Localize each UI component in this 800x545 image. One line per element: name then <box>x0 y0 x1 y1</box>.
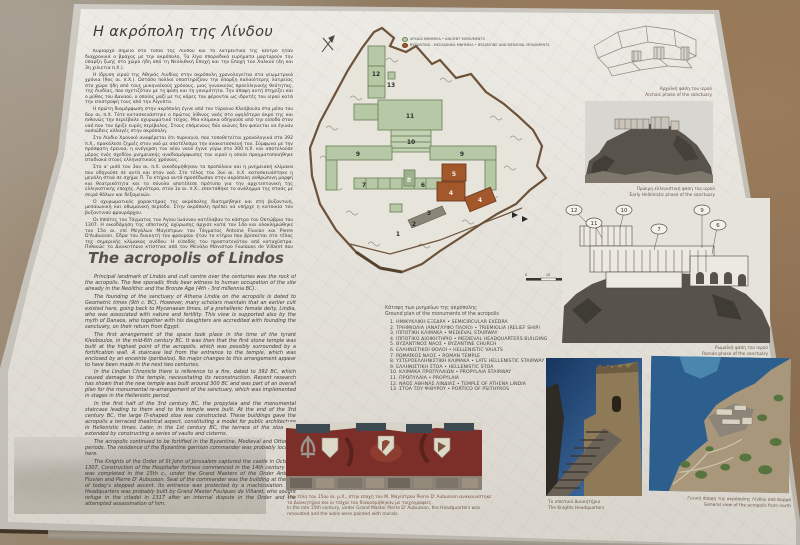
plan-number: 11 <box>406 113 414 120</box>
mural-photo <box>286 422 482 490</box>
mural-caption-gr: Στα τέλη του 15ου αι. μ.Χ., στην εποχή τ… <box>287 495 495 506</box>
roman-callout: 10 <box>621 208 628 214</box>
archaic-caption-en: Archaic phase of the sanctuary <box>598 93 712 99</box>
early-hellenistic-photo <box>585 101 713 183</box>
roman-callout: 9 <box>700 208 704 214</box>
greek-paragraph: Η ίδρυση ιερού της Αθηνάς Λινδίας στην α… <box>85 73 293 106</box>
english-paragraph: Principal landmark of Lindos and cult ce… <box>85 274 296 292</box>
legend-medieval: ΒΥΖΑΝΤΙΝΑ - ΜΕΣΑΙΩΝΙΚΑ ΜΝΗΜΕΙΑ • BYZANTI… <box>402 43 592 49</box>
legend-medieval-label: ΒΥΖΑΝΤΙΝΑ - ΜΕΣΑΙΩΝΙΚΑ ΜΝΗΜΕΙΑ • BYZANTI… <box>410 43 549 49</box>
roman-phase-reconstruction: 12 11 10 7 9 6 <box>562 198 770 343</box>
stoa-wing-east <box>485 160 496 190</box>
archaic-phase-sketch <box>588 18 706 84</box>
aerial-view-photo <box>649 356 791 493</box>
plan-number: 9 <box>356 151 360 158</box>
hellenistic-vaults <box>354 178 446 189</box>
plan-number: 3 <box>427 210 431 217</box>
plan-number: 2 <box>412 221 416 228</box>
legend-swatch-ancient-icon <box>402 37 408 42</box>
english-section-body: Principal landmark of Lindos and cult ce… <box>85 274 296 506</box>
propylaia-wing <box>354 104 378 120</box>
greek-section-body: Κυρίαρχο σημείο στο τοπίο της Λίνδου και… <box>85 49 293 248</box>
plan-number: 12 <box>372 71 380 78</box>
plan-number: 5 <box>452 171 456 178</box>
plan-number: 6 <box>421 182 425 189</box>
ground-plan-caption: Κάτοψη των μνημείων της ακρόπολης Ground… <box>385 306 580 318</box>
archaic-caption: Αρχαϊκή φάση του ιερού Archaic phase of … <box>598 87 712 98</box>
english-paragraph: The founding of the sanctuary of Athena … <box>85 294 296 330</box>
plan-number: 10 <box>407 139 415 146</box>
roman-callout: 6 <box>716 223 720 229</box>
headquarters-caption-en: The Knights Headquarters <box>548 506 660 512</box>
greek-paragraph: Ο οχυρωματικός χαρακτήρας της ακρόπολης … <box>85 200 293 217</box>
english-paragraph: The first arrangement of the space took … <box>85 332 296 368</box>
roman-callout: 11 <box>591 221 598 227</box>
gate-marks <box>512 212 528 222</box>
portico-psithyros <box>388 72 395 79</box>
plan-number: 4 <box>478 197 482 204</box>
plan-number: 4 <box>449 190 453 197</box>
plan-number: 9 <box>460 151 464 158</box>
ground-plan-drawing: 0 10 30 M 12 13 11 10 9 9 7 8 6 5 4 4 3 … <box>290 8 588 308</box>
photo-of-information-panel: Η ακρόπολη της Λίνδου Κυρίαρχο σημείο στ… <box>0 0 800 545</box>
headquarters-caption: Το ιπποτικό Διοικητήριο The Knights Head… <box>548 500 660 511</box>
early-hellenistic-caption: Πρώιμη ελληνιστική φάση του ιερού Early … <box>588 187 715 198</box>
greek-paragraph: Κυρίαρχο σημείο στο τοπίο της Λίνδου και… <box>85 49 293 71</box>
knights-headquarters-photo <box>546 358 642 496</box>
roman-callout: 12 <box>571 208 578 214</box>
aerial-caption: Γενική άποψη της ακρόπολης Λίνδου από Βο… <box>653 496 791 510</box>
greek-section-title: Η ακρόπολη της Λίνδου <box>93 24 313 40</box>
lower-terrace-building <box>390 204 402 212</box>
english-paragraph: The Knights of the Order of St John of J… <box>85 459 296 506</box>
mural-caption: Στα τέλη του 15ου αι. μ.Χ., στην εποχή τ… <box>287 495 495 518</box>
plan-number: 7 <box>362 182 366 189</box>
map-legend: ΑΡΧΑΙΑ ΜΝΗΜΕΙΑ • ANCIENT MONUMENTS ΒΥΖΑΝ… <box>402 37 592 48</box>
english-paragraph: In the Lindian Chronicle there is refere… <box>85 369 296 399</box>
scale-tick: 10 <box>546 273 550 277</box>
scale-tick: 0 <box>525 273 527 277</box>
plan-number: 1 <box>396 231 400 238</box>
greek-paragraph: Στο α' μισό του 3ου αι. π.Χ. οικοδομήθηκ… <box>85 165 293 198</box>
legend-swatch-medieval-icon <box>402 43 408 48</box>
english-section-title: The acropolis of Lindos <box>88 249 318 267</box>
greek-paragraph: Στο Λίνδιο Χρονικό αναφέρεται ότι πυρκαγ… <box>85 136 293 164</box>
english-paragraph: In the first half of the 3rd century BC,… <box>85 401 296 437</box>
plan-number: 13 <box>387 82 395 89</box>
acropolis-ground-plan: 0 10 30 M 12 13 11 10 9 9 7 8 6 5 4 4 3 … <box>290 8 588 308</box>
mural-caption-en: In the late 15th century, under Grand Ma… <box>287 506 495 517</box>
ground-plan-caption-en: Ground plan of the monuments of the acro… <box>385 312 580 318</box>
plan-number: 8 <box>407 177 411 184</box>
greek-paragraph: Οι Ιππότες του Τάγματος του Αγίου Ιωάννο… <box>85 218 293 249</box>
north-arrow-icon <box>322 36 334 52</box>
stoa-wing-west <box>326 160 337 190</box>
roman-callout: 7 <box>657 227 661 233</box>
greek-paragraph: Η πρώτη διαμόρφωση στην ακρόπολη έγινε α… <box>85 107 293 135</box>
english-paragraph: The acropolis continued to be fortified … <box>85 439 296 457</box>
